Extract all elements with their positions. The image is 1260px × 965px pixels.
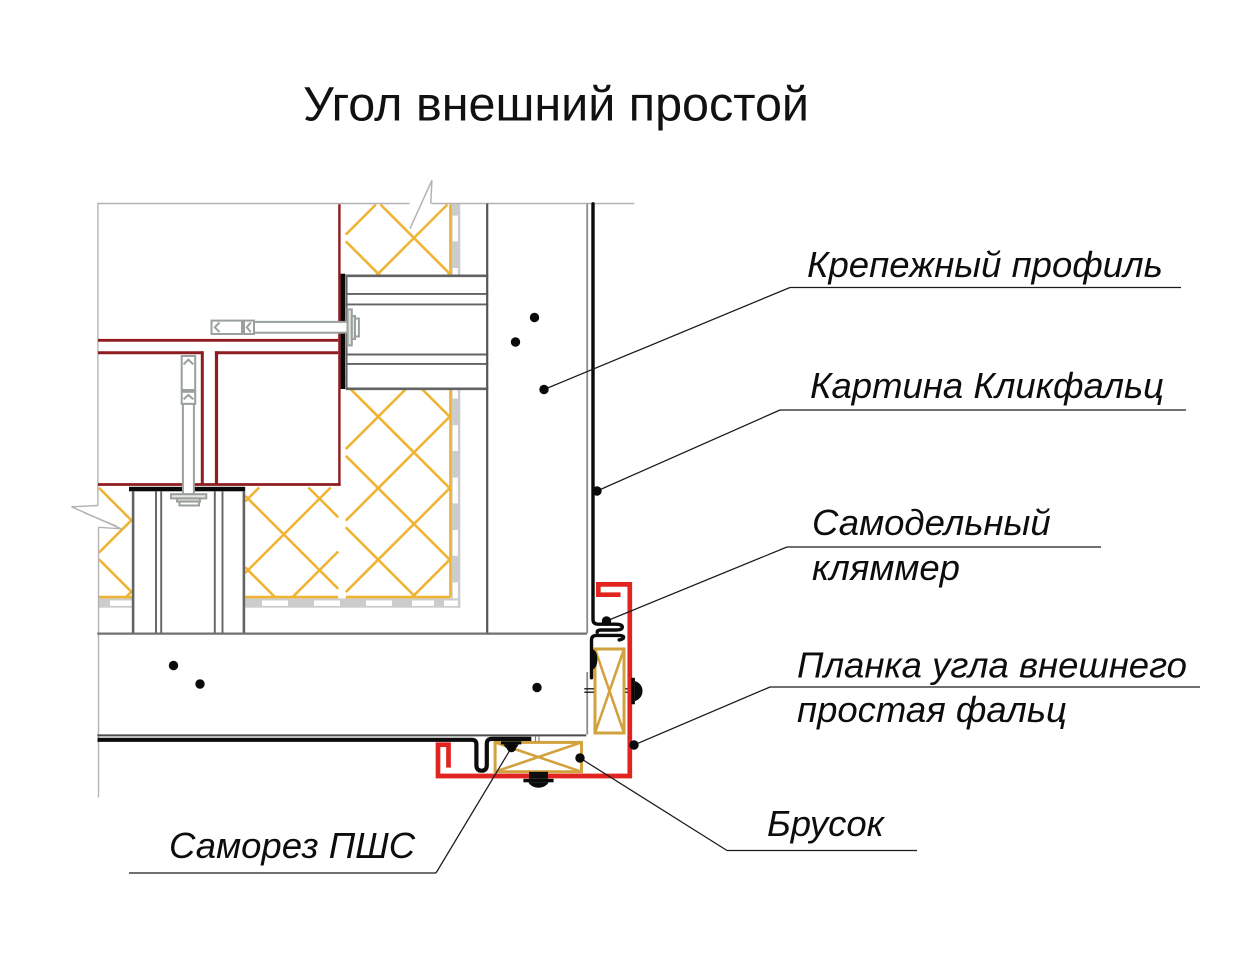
svg-text:Картина Кликфальц: Картина Кликфальц bbox=[810, 365, 1164, 406]
svg-text:Самодельный: Самодельный bbox=[812, 502, 1051, 543]
svg-text:Планка угла внешнего: Планка угла внешнего bbox=[797, 645, 1187, 686]
svg-text:простая фальц: простая фальц bbox=[797, 689, 1067, 730]
svg-text:Саморез ПШС: Саморез ПШС bbox=[169, 825, 416, 866]
svg-text:Брусок: Брусок bbox=[767, 803, 886, 844]
svg-text:Крепежный профиль: Крепежный профиль bbox=[807, 244, 1163, 285]
svg-text:Угол внешний простой: Угол внешний простой bbox=[303, 78, 809, 132]
svg-text:кляммер: кляммер bbox=[812, 547, 960, 588]
